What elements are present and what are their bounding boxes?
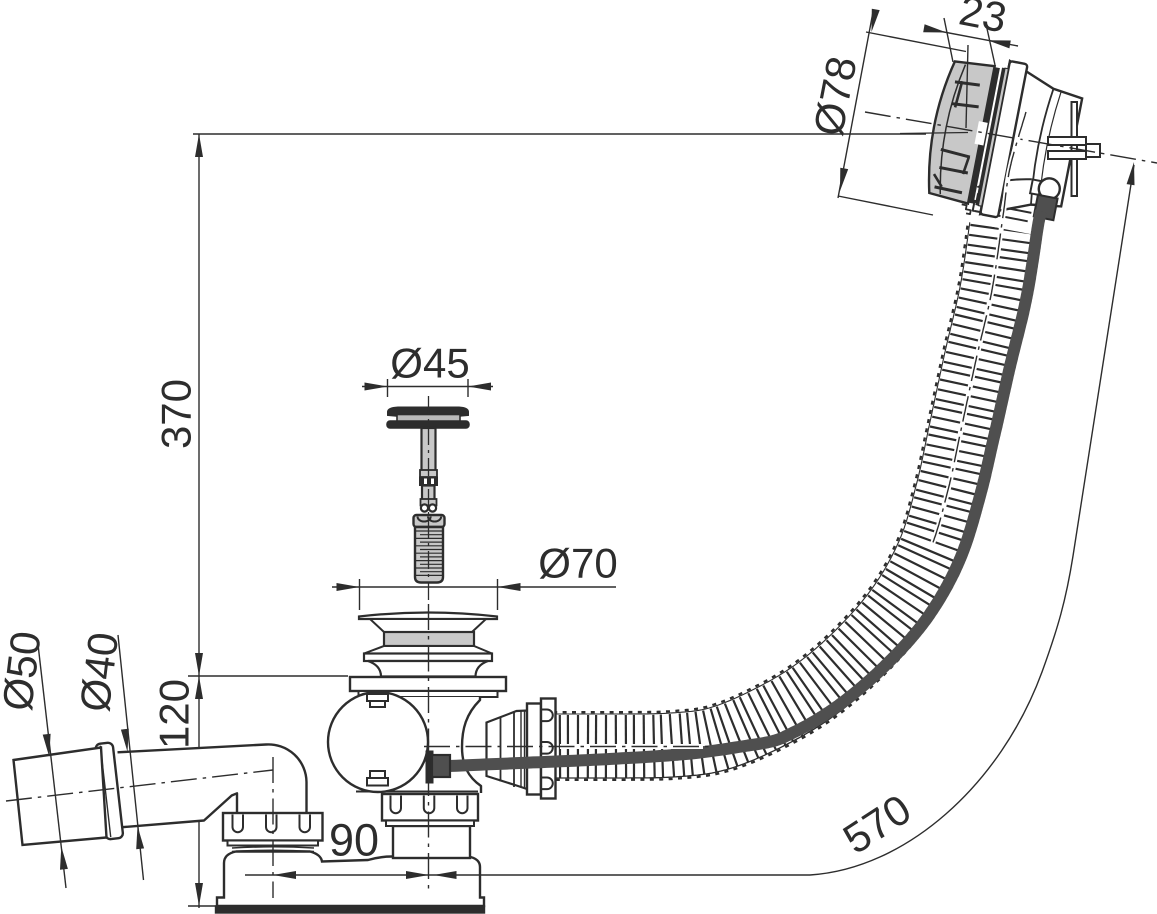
svg-text:Ø40: Ø40 xyxy=(71,630,127,715)
svg-text:370: 370 xyxy=(153,379,200,449)
svg-text:90: 90 xyxy=(329,815,379,866)
svg-text:Ø70: Ø70 xyxy=(538,540,617,587)
svg-text:120: 120 xyxy=(151,679,198,749)
svg-text:Ø45: Ø45 xyxy=(390,340,469,387)
